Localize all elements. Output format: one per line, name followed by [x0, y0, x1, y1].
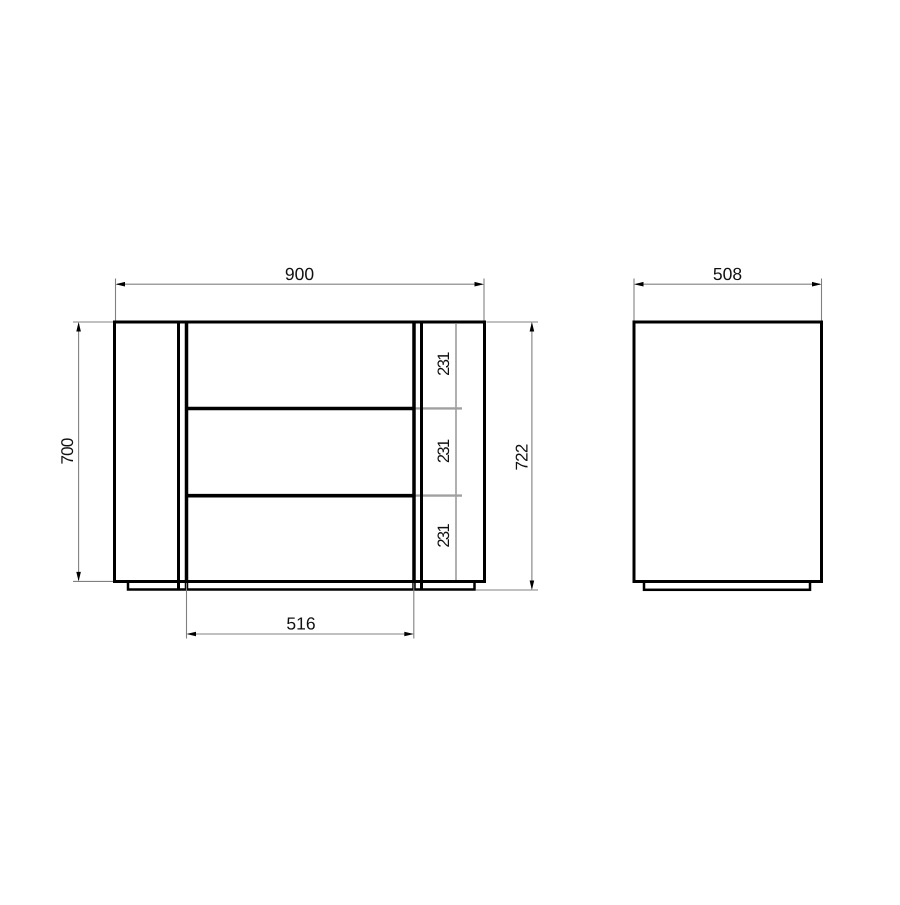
svg-text:231: 231: [435, 439, 453, 463]
svg-text:900: 900: [285, 264, 314, 284]
svg-text:700: 700: [58, 438, 77, 464]
svg-text:722: 722: [513, 444, 532, 470]
svg-text:508: 508: [713, 264, 742, 284]
svg-text:231: 231: [435, 524, 453, 548]
svg-text:231: 231: [435, 352, 453, 376]
svg-text:516: 516: [286, 614, 315, 634]
